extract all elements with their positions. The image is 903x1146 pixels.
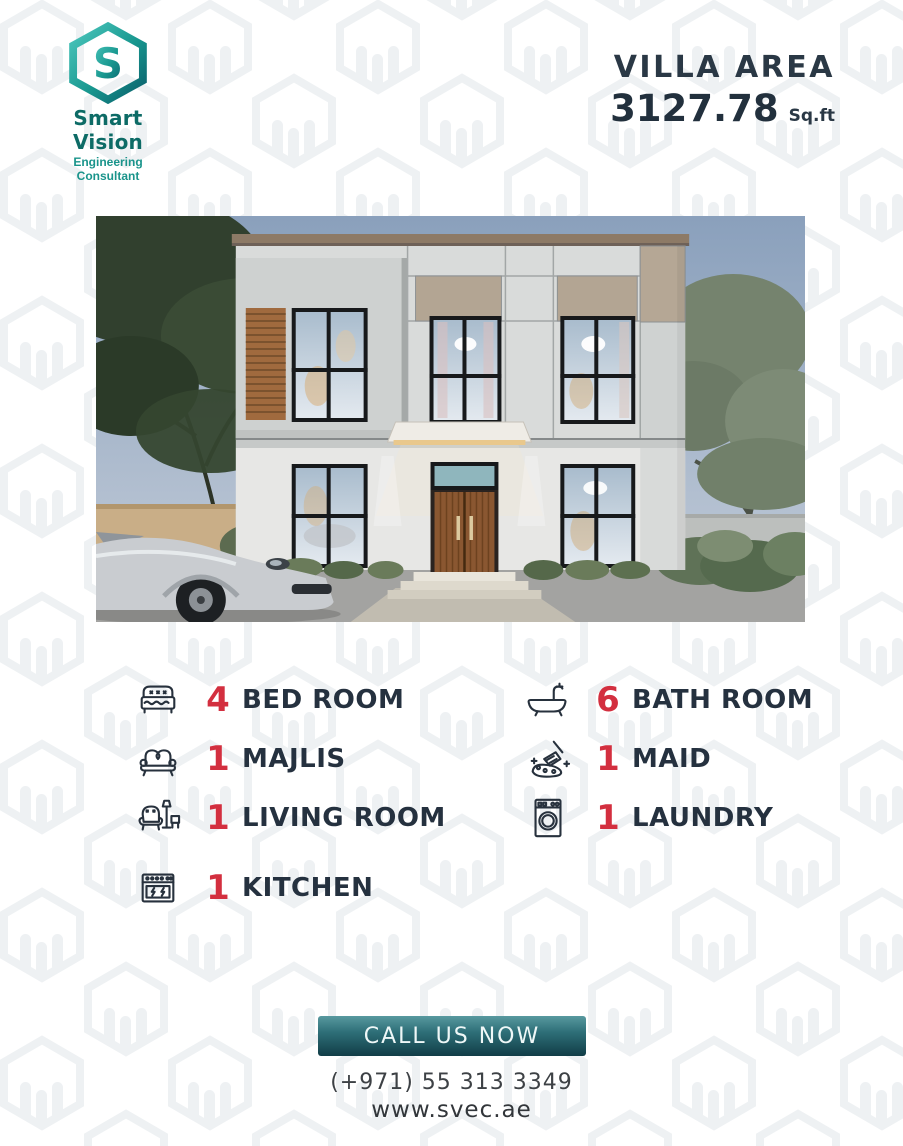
upper-windows [292, 308, 636, 424]
feature-count: 1 [594, 739, 622, 779]
feature-label: LAUNDRY [632, 803, 773, 833]
brand-tagline: Engineering Consultant [50, 155, 166, 183]
villa-area-value: 3127.78 [610, 87, 779, 130]
feature-bath-room: 6 BATH ROOM [516, 674, 813, 726]
brand-name: Smart Vision [50, 106, 166, 154]
bed-icon [126, 674, 190, 726]
villa-area-block: VILLA AREA 3127.78 Sq.ft [610, 50, 835, 130]
sofa-icon [126, 733, 190, 785]
feature-label: MAID [632, 744, 711, 774]
washing-machine-icon [516, 792, 580, 844]
feature-count: 4 [204, 680, 232, 720]
feature-maid: 1 MAID [516, 733, 711, 785]
feature-label: MAJLIS [242, 744, 346, 774]
cleaning-brush-icon [516, 733, 580, 785]
feature-living-room: 1 LIVING ROOM [126, 792, 446, 844]
hexagon-s-logo-icon: S [60, 22, 156, 104]
feature-count: 1 [204, 868, 232, 908]
feature-label: KITCHEN [242, 873, 373, 903]
ground-window-left [292, 464, 368, 568]
villa-area-unit: Sq.ft [789, 106, 835, 126]
feature-laundry: 1 LAUNDRY [516, 792, 773, 844]
call-us-now-button[interactable]: CALL US NOW [318, 1016, 586, 1056]
svg-text:S: S [93, 39, 123, 88]
feature-majlis: 1 MAJLIS [126, 733, 346, 785]
feature-count: 1 [204, 798, 232, 838]
feature-count: 1 [594, 798, 622, 838]
feature-label: BATH ROOM [632, 685, 813, 715]
feature-count: 6 [594, 680, 622, 720]
armchair-icon [126, 792, 190, 844]
bathtub-icon [516, 674, 580, 726]
website-link[interactable]: www.svec.ae [0, 1097, 903, 1123]
brand-logo: S Smart Vision Engineering Consultant [50, 22, 166, 183]
wood-slat-panel [246, 308, 286, 420]
feature-count: 1 [204, 739, 232, 779]
ground-window-right [560, 464, 635, 568]
entrance-door [431, 462, 499, 574]
feature-bed-room: 4 BED ROOM [126, 674, 404, 726]
feature-label: LIVING ROOM [242, 803, 446, 833]
villa-area-label: VILLA AREA [610, 50, 835, 85]
villa-building [232, 234, 689, 599]
phone-number[interactable]: (+971) 55 313 3349 [0, 1070, 903, 1095]
feature-kitchen: 1 KITCHEN [126, 862, 373, 914]
flyer-page: S Smart Vision Engineering Consultant VI… [0, 0, 903, 1146]
stove-icon [126, 862, 190, 914]
villa-photo [96, 216, 805, 622]
feature-label: BED ROOM [242, 685, 404, 715]
